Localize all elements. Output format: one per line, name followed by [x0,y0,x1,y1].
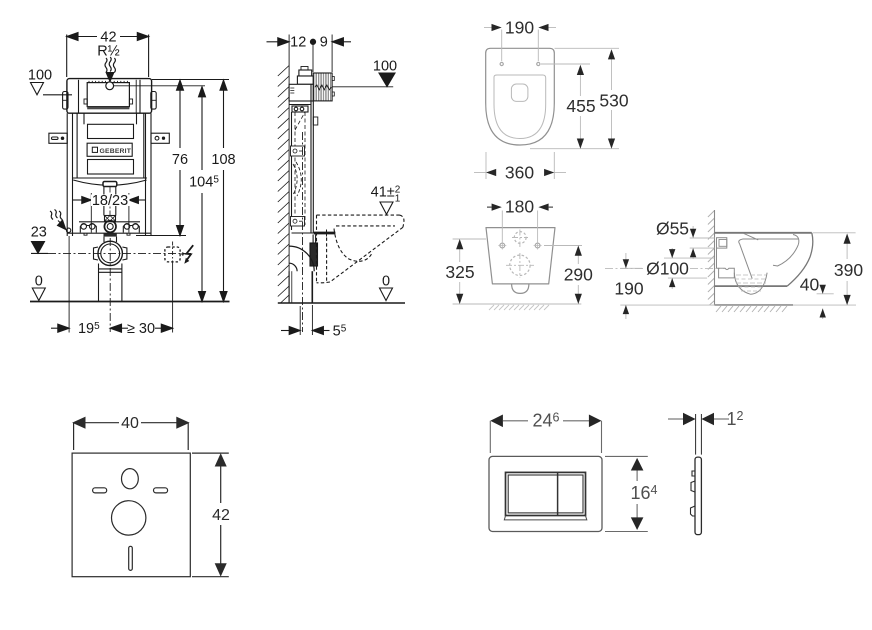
svg-text:100: 100 [373,59,397,75]
svg-text:190: 190 [505,18,534,38]
svg-text:Ø100: Ø100 [646,259,689,279]
svg-text:530: 530 [599,91,628,111]
svg-text:GEBERIT: GEBERIT [100,148,132,155]
svg-text:325: 325 [445,262,474,282]
svg-text:180: 180 [505,196,534,216]
svg-text:42: 42 [212,507,230,524]
svg-text:≥ 30: ≥ 30 [127,321,155,337]
svg-text:40: 40 [121,415,139,432]
svg-text:108: 108 [211,152,235,168]
svg-text:0: 0 [382,274,390,290]
svg-text:0: 0 [35,274,43,290]
svg-text:9: 9 [320,34,328,50]
svg-text:23: 23 [31,225,47,241]
svg-text:290: 290 [564,265,593,285]
svg-text:360: 360 [505,163,534,183]
svg-text:390: 390 [834,260,863,280]
svg-text:12: 12 [290,34,306,50]
svg-text:100: 100 [28,68,52,84]
svg-text:76: 76 [172,152,188,168]
svg-text:40: 40 [800,275,820,295]
svg-text:18/23: 18/23 [92,193,128,209]
svg-text:Ø55: Ø55 [656,219,689,239]
svg-text:455: 455 [566,96,595,116]
svg-text:R½: R½ [97,44,120,60]
svg-text:190: 190 [614,279,643,299]
